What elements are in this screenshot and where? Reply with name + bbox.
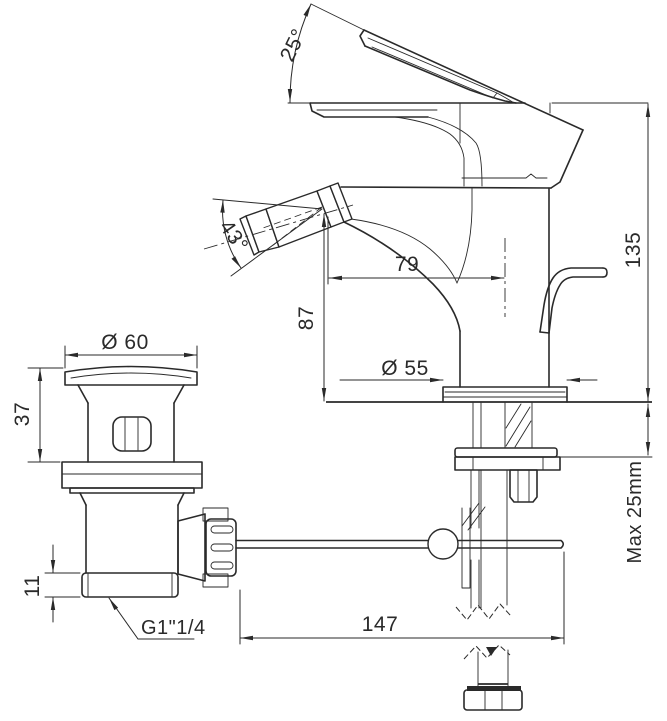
lever-handle-raised [360, 30, 583, 130]
technical-drawing-canvas: 25° 43° 79 87 135 Max 25mm Ø 55 [0, 0, 667, 721]
dim-label-waste-collar-height: 11 [21, 575, 44, 598]
thread-hatching [506, 404, 531, 447]
mounting-nut [510, 470, 537, 502]
dim-label-waste-flange-diameter: Ø 60 [101, 331, 149, 354]
base-flange [443, 387, 567, 402]
pipe-break-symbol [456, 604, 511, 620]
dim-label-spout-height: 87 [295, 306, 318, 330]
washer [455, 448, 557, 457]
waste-window [113, 417, 151, 451]
spout-inner-curve-2 [457, 188, 472, 283]
dim-line-147 [240, 552, 564, 644]
dim-label-waste-thread: G1"1/4 [141, 617, 206, 639]
dim-label-handle-angle: 25° [276, 25, 311, 65]
handle-open-extension-line [311, 4, 364, 30]
dim-line-11 [45, 545, 80, 622]
dim-label-waste-upper-height: 37 [11, 402, 34, 426]
technical-drawing-page: 25° 43° 79 87 135 Max 25mm Ø 55 [0, 0, 667, 721]
handle-hub [550, 103, 583, 188]
supply-pipe-and-lift-rod [456, 470, 511, 620]
faucet-body [341, 174, 551, 387]
dim-label-base-diameter: Ø 55 [381, 357, 429, 380]
ball-joint [428, 529, 458, 559]
waste-mid-flange [62, 462, 202, 488]
waste-thread-collar [82, 573, 178, 597]
popup-control-knob [540, 268, 607, 333]
tailpiece-and-nut [464, 645, 522, 710]
spout-underside-curve [344, 222, 460, 331]
dim-label-spout-reach: 79 [395, 253, 419, 276]
waste-assembly-detail [62, 367, 236, 598]
rod-gland-nut [178, 508, 236, 587]
dim-label-rod-length: 147 [362, 613, 399, 636]
mounting-bracket [455, 457, 560, 470]
lever-handle-closed [310, 103, 525, 186]
dim-label-total-height: 135 [622, 232, 645, 269]
dim-label-max-deck: Max 25mm [624, 461, 646, 564]
popup-linkage [236, 503, 563, 588]
